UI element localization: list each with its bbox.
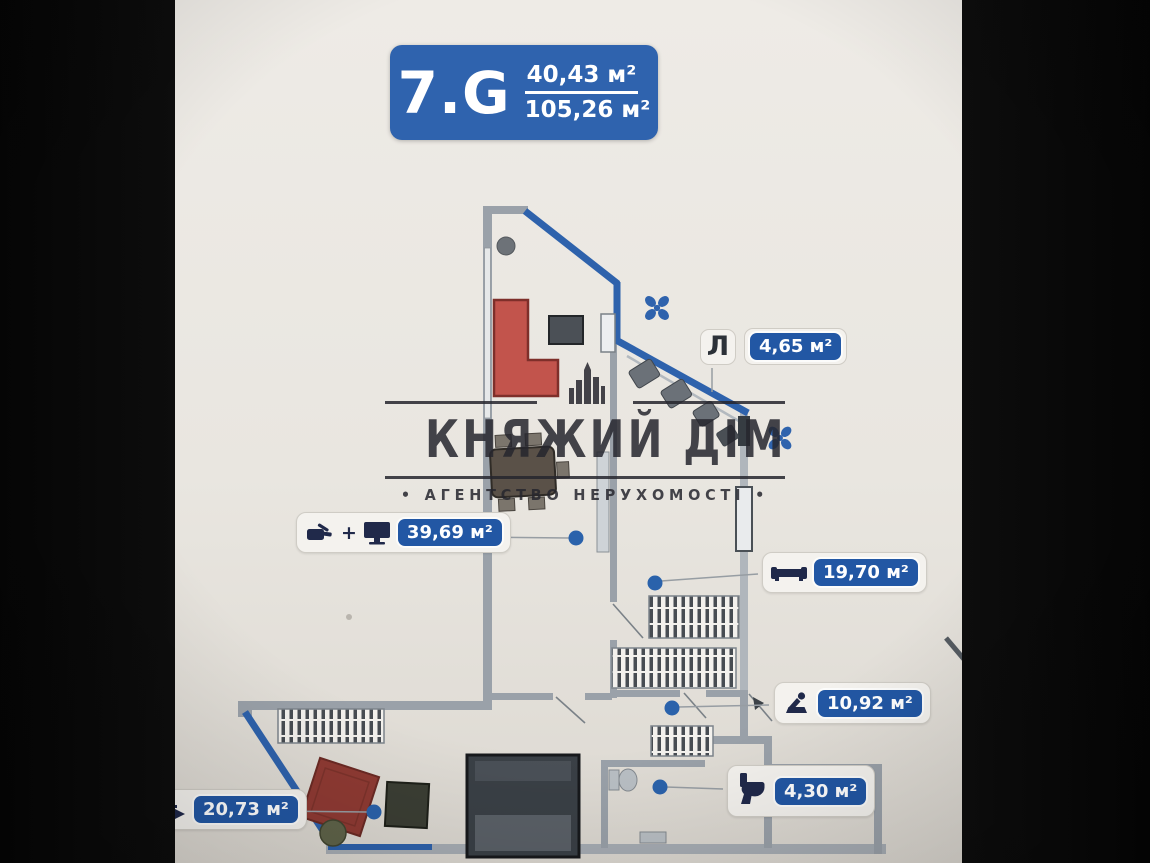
wardrobe-dressing [651, 726, 713, 756]
unit-areas: 40,43 м² 105,26 м² [525, 62, 651, 123]
bottom-window-strip [328, 844, 432, 850]
window-wall-top-diagonal [525, 211, 618, 284]
wardrobe-hall-1 [649, 596, 739, 638]
kitchen-living-label: + 39,69 м² [296, 512, 511, 553]
door-leaf-kitchen [613, 604, 643, 638]
corridor-wall-a [491, 693, 553, 700]
toilet-bowl-plan [619, 769, 637, 791]
wardrobe-bedroom [278, 709, 384, 743]
top-wall-stub [483, 206, 528, 214]
small-mark [346, 614, 352, 620]
kitchen-living-area-pill: 39,69 м² [398, 519, 502, 546]
bathroom-label: 10,92 м² [774, 682, 931, 724]
wardrobes [278, 596, 739, 756]
lower-right-side-wall [874, 764, 882, 854]
loggia-letter: Л [700, 329, 736, 365]
watermark-subtitle: • АГЕНТСТВО НЕРУХОМОСТІ • [393, 486, 777, 504]
plant-pot [320, 820, 346, 846]
kitchen-pan-icon [305, 521, 335, 545]
unit-badge: 7.G 40,43 м² 105,26 м² [390, 45, 658, 140]
tv-cabinet [549, 316, 583, 344]
bathroom-area-pill: 10,92 м² [818, 690, 922, 717]
right-black-band [962, 0, 1150, 863]
toilet-icon [736, 772, 768, 810]
living-room-label: 19,70 м² [762, 552, 927, 593]
total-area-value: 105,26 м² [525, 94, 651, 123]
wc-label: 4,30 м² [727, 765, 875, 817]
room-marker-dot [648, 576, 663, 591]
corridor-wall-b [585, 693, 612, 700]
hall-wall-a [610, 690, 680, 697]
bed [467, 755, 579, 857]
door-leaf-hall [684, 693, 706, 718]
toilet-tank-plan [609, 770, 619, 790]
fan-icon [643, 294, 671, 322]
ceiling-light [497, 237, 515, 255]
plus-sign: + [341, 522, 357, 544]
unit-number: 7.G [398, 64, 511, 122]
wardrobe-hall-2 [612, 648, 736, 688]
photo-of-floorplan: КНЯЖИЙ ДІМ • АГЕНТСТВО НЕРУХОМОСТІ • 7.G… [0, 0, 1150, 863]
bed-pillows [475, 761, 571, 781]
bath-top-wall [601, 760, 705, 767]
agency-watermark: КНЯЖИЙ ДІМ • АГЕНТСТВО НЕРУХОМОСТІ • [385, 368, 785, 504]
room-marker-dot [367, 805, 382, 820]
door-leaf-corridor [556, 697, 585, 723]
watermark-topline [385, 368, 785, 404]
room-marker-dot [665, 701, 680, 716]
hall-wall-b [706, 690, 744, 697]
side-table [385, 782, 429, 828]
entry-step-wall [740, 690, 748, 740]
sink-plan [640, 832, 666, 843]
loggia-area-pill: 4,65 м² [750, 333, 841, 360]
building-logo-icon [563, 360, 607, 408]
room-marker-dot [569, 531, 584, 546]
entry-arrow [753, 697, 764, 710]
tv-icon [363, 521, 391, 545]
door-leaf-entry [749, 694, 772, 721]
bedroom-label: 20,73 м² [152, 789, 307, 830]
bath-left-wall [601, 760, 608, 848]
bed-blanket [475, 815, 571, 851]
watermark-title: КНЯЖИЙ ДІМ [425, 410, 745, 470]
room-marker-dot [653, 780, 668, 795]
bedroom-area-pill: 20,73 м² [194, 796, 298, 823]
bath-icon [783, 689, 811, 717]
sofa-icon [771, 564, 807, 582]
left-black-band [0, 0, 175, 863]
living-area-value: 40,43 м² [525, 62, 639, 94]
loggia-door [601, 314, 615, 352]
wc-area-pill: 4,30 м² [775, 778, 866, 805]
watermark-midline [385, 476, 785, 479]
loggia-label: Л 4,65 м² [700, 328, 847, 365]
living-room-area-pill: 19,70 м² [814, 559, 918, 586]
